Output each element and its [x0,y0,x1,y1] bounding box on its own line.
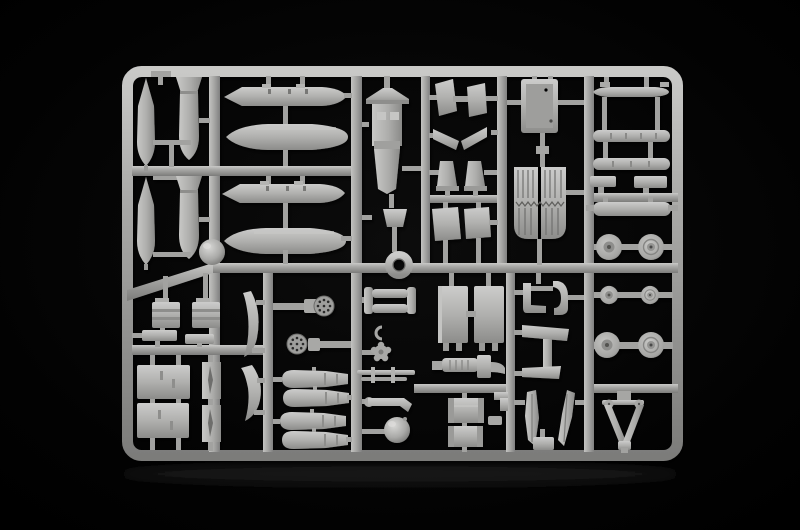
missile-half-part [593,130,670,142]
sprue-gate [514,330,522,335]
sprue-gate [566,190,584,195]
sprue-gate [208,442,213,451]
gear-anchor-wing [522,366,561,379]
sprue-tab [536,146,549,154]
floor-taper [374,149,400,194]
sprue-gate [658,292,673,298]
sprue-photograph: Plastic scale-model kit sprue with unass… [0,0,800,530]
tank-end-band [448,426,454,447]
runner-horizontal-center [430,195,497,203]
runner-vertical-5 [263,268,273,452]
seat-ridge [152,309,180,312]
runner-vertical-4 [497,76,507,270]
runner-horizontal-right-bottom [594,384,678,393]
sprue-gate [558,100,584,105]
sprue-gate [273,377,282,382]
sprue-gate [514,371,522,376]
fork-pivot-dot [608,403,610,405]
intake-ramp-part [467,83,487,117]
perforated-disc-part [287,334,307,354]
ball-highlight [203,243,211,249]
console-detail [390,112,399,120]
sprue-gate [586,205,594,211]
sprue-gate [256,300,265,305]
tank-end-band [477,426,483,447]
actuator-cylinder-part [442,358,478,372]
exhaust-frame-cap [364,287,373,314]
sprue-gate [341,236,352,241]
exhaust-frame-bar [372,304,408,313]
seat-base-part [142,330,177,341]
sprue-gate [429,95,437,100]
sprue-gate [273,303,306,310]
small-wheel-part [641,286,659,304]
sprue-tab [660,82,669,87]
sprue-gate [514,400,525,405]
sprue-gate [617,292,642,298]
tank-end-band [478,398,484,423]
sprue-gate [283,203,288,228]
main-wheel-part [594,332,620,358]
sprue-gate [208,355,213,363]
sprue-gate [132,333,143,338]
sprue-gate [362,429,385,434]
rod-clip [371,367,375,383]
sprue-gate [476,238,481,263]
gear-anchor-stem [543,339,552,370]
sprue-gate [568,295,584,300]
strut-plate-part [438,286,468,343]
sprue-gate [489,220,498,225]
push-rod-part [361,377,407,381]
seat-ridge [192,317,220,320]
sprue-gate [346,437,352,442]
sprue-gate [283,250,288,264]
sprue-gate [362,122,369,127]
sprue-gate [507,100,521,105]
sprue-gate [362,215,372,220]
drop-tank-smooth-part [226,124,348,150]
runner-vertical-3 [421,76,430,270]
sprue-gate [443,240,448,263]
perforated-disc-part [314,296,334,316]
sprue-gate [199,118,210,123]
sprue-gate [252,348,265,353]
sprue-gate [462,447,467,452]
sprue-gate [283,106,288,124]
sprue-gate [208,399,213,405]
push-rod-part [357,370,415,375]
sprue-gate [273,419,280,424]
floor-shadow [120,463,680,485]
door-latch [160,371,163,380]
stub-pylon-part [634,176,667,188]
tub-detail-dot [544,88,547,91]
sprue-gate [540,154,545,167]
hatch-plate-part [432,207,461,241]
sprue-gate [575,400,584,405]
runner-horizontal-mid-right [411,263,678,273]
sprue-gate [150,438,155,450]
equipment-box-part [533,437,554,450]
sprue-gate [663,342,673,349]
sprue-gate [449,273,454,287]
sprue-gate [453,96,469,102]
launcher-rail-part [593,202,671,216]
sprue-gate [153,252,191,257]
main-wheel-part [638,332,664,358]
deck-shadow [366,100,409,104]
sprue-gate [199,217,210,222]
fork-pivot-dot [638,403,640,405]
door-latch [170,421,173,430]
bay-door-part [137,403,189,438]
sprue-gate [540,133,545,148]
sprue-gate [598,187,604,193]
sprue-gate [663,244,673,250]
sprue-tab [308,338,320,351]
sprue-gate [283,150,288,166]
seat-base-part [185,334,214,344]
pedestal-foot [464,186,487,191]
seat-ridge [192,309,220,312]
sprue-gate [484,170,497,175]
door-latch [158,410,161,419]
photo-stage: Plastic scale-model kit sprue with unass… [0,0,800,530]
seat-ridge [152,317,180,320]
sprue-gate [320,341,351,348]
sprue-gate [491,130,498,135]
exhaust-frame-cap [407,287,416,314]
door-latch [172,379,175,388]
sprue-gate [384,76,390,89]
sprue-gate [621,244,640,250]
sprue-gate [344,93,352,98]
sprue-gate [254,410,265,415]
small-wheel-part [600,286,618,304]
sprue-gate [155,341,160,347]
ball-pin [403,417,407,421]
sprue-gate [257,378,265,383]
small-connector-part [488,416,502,425]
sprue-gate [466,311,476,317]
cockpit-floor-part [372,104,402,146]
sprue-tab [432,361,442,370]
sprue-gate [655,97,660,130]
sprue-gate [643,188,649,193]
sprue-gate [392,227,397,252]
main-wheel-part [596,234,622,260]
instrument-cover-part [383,209,407,227]
sprue-gate [347,395,352,400]
sprue-gate [603,142,608,158]
sprue-tab [600,82,610,87]
sprue-gate [537,239,542,265]
tank-end-band [448,398,454,423]
sprue-gate [621,448,628,453]
ball-highlight [388,421,396,427]
sprue-gate [531,286,553,291]
plate-edge-light [438,286,442,343]
sprue-gate [644,77,649,87]
console-detail [377,112,386,120]
runner-vertical-6 [506,268,515,452]
plate-foot [479,343,485,351]
sprue-gate [158,73,163,85]
main-wheel-part [638,234,664,260]
hatch-plate-part [464,207,491,239]
sprue-gate [402,166,421,171]
sprue-gate [619,342,639,349]
sprue-gate [540,429,545,438]
sprue-gate [648,142,653,158]
sprue-gate [150,355,155,366]
ball-part [384,417,410,443]
runner-horizontal-center-bottom [414,384,506,393]
exhaust-frame-bar [372,289,408,298]
rod-clip [391,367,395,383]
angle-bracket-part [500,398,508,411]
model-sprue-image [0,0,800,530]
tank-rib [454,405,478,407]
sprue-gate [473,191,478,196]
ball-part [199,239,225,265]
missile-half-part [593,87,669,97]
crew-seat-part [152,302,180,328]
sprue-gate [389,194,394,208]
sprue-gate [176,438,181,450]
sprue-gate [486,273,491,287]
sprue-gate [169,143,174,167]
plate-foot [492,343,498,351]
crew-seat-part [192,302,220,328]
sprue-gate [486,96,498,101]
sprue-gate [445,191,450,196]
floor-band [374,141,400,149]
sprue-gate [536,273,541,284]
runner-horizontal-mid-left [213,263,387,273]
actuator-body [477,355,491,378]
runner-horizontal-1 [132,166,351,176]
plate-foot [443,343,449,351]
sprue-gate [462,423,467,426]
sprue-gate [602,97,607,130]
sprue-gate [668,205,678,211]
pedestal-foot [436,186,459,191]
stub-pylon-part [590,176,616,187]
tub-interior [526,84,553,128]
strut-plate-part [474,286,504,343]
sprue-gate [176,355,181,366]
sprue-gate [514,290,523,295]
bay-door-part [137,365,190,399]
tub-detail-dot [549,119,552,122]
plate-foot [456,343,462,351]
sprue-gate [197,343,202,347]
